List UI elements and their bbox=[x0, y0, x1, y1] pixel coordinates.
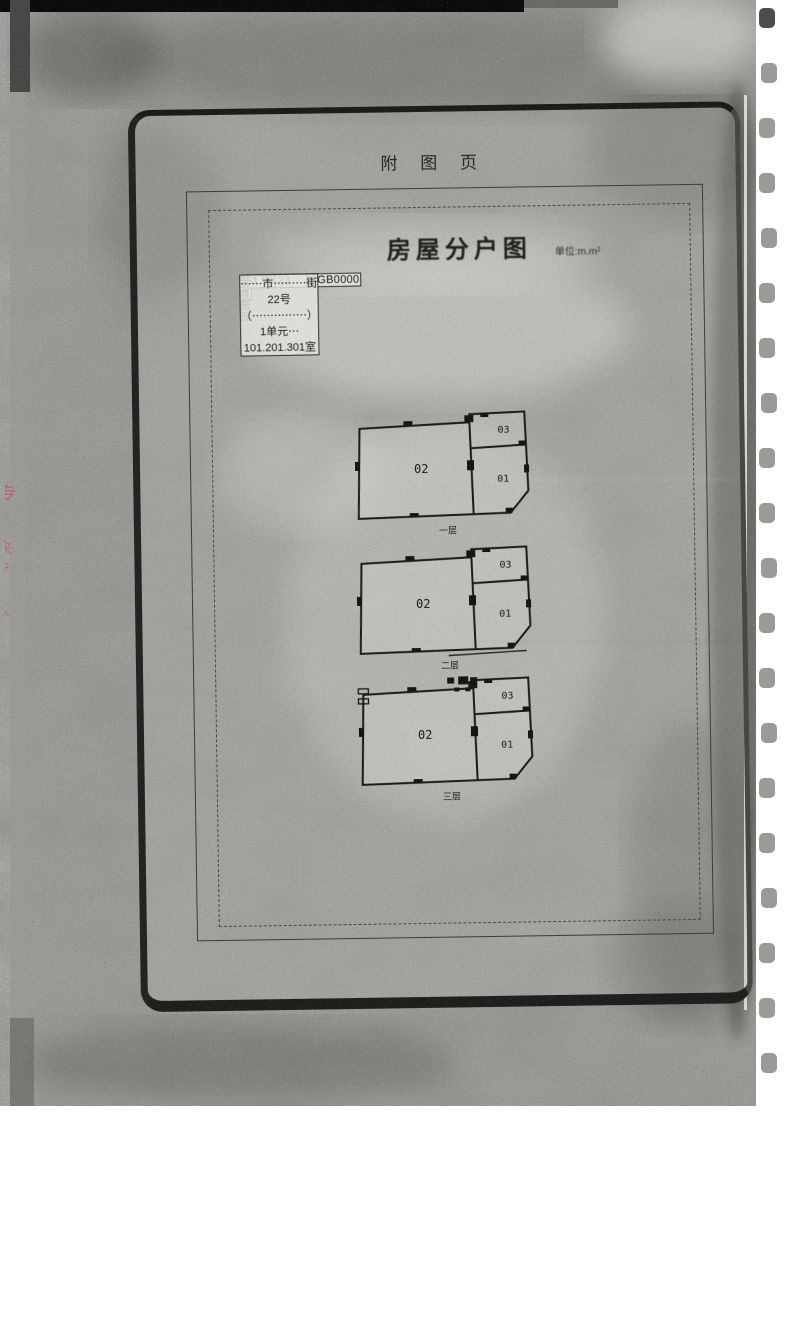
stamp-fragment: 乡 bbox=[5, 558, 16, 578]
room-label-02: 02 bbox=[418, 728, 433, 742]
binder-hole bbox=[759, 283, 775, 303]
certificate-sheet: 附 图 页 房屋分户图 单位:m.m² 丘号 210882009028GB000… bbox=[128, 101, 753, 1012]
binder-hole bbox=[761, 1053, 777, 1073]
document-title: 房屋分户图 bbox=[387, 228, 533, 265]
table-row: 坐落 ⋯⋯市⋯⋯⋯街22号（⋯⋯⋯⋯⋯）1单元⋯101.201.301室 bbox=[239, 275, 240, 308]
binder-hole bbox=[759, 668, 775, 688]
floor-plan-3: 02 03 01 三层 bbox=[357, 675, 559, 810]
room-label-03: 03 bbox=[497, 425, 509, 436]
binder-hole bbox=[759, 998, 775, 1018]
binder-hole bbox=[759, 943, 775, 963]
room-label-02: 02 bbox=[414, 462, 429, 476]
binder-hole bbox=[759, 833, 775, 853]
floor-caption: 一层 bbox=[439, 525, 457, 535]
binder-hole bbox=[761, 558, 777, 578]
address-value: ⋯⋯市⋯⋯⋯街22号（⋯⋯⋯⋯⋯）1单元⋯101.201.301室 bbox=[239, 273, 319, 356]
binder-hole bbox=[761, 393, 777, 413]
room-label-02: 02 bbox=[416, 597, 431, 611]
scanned-page: { "scan": { "header_title": "附 图 页", "do… bbox=[0, 0, 800, 1318]
floor-plan-1: 02 03 01 一层 bbox=[353, 409, 555, 544]
page-title: 附 图 页 bbox=[380, 148, 486, 175]
stamp-fragment: 来 bbox=[5, 538, 16, 558]
binder-hole bbox=[759, 448, 775, 468]
unit-note: 单位:m.m² bbox=[555, 242, 601, 258]
floor-caption: 二层 bbox=[441, 660, 459, 670]
room-label-03: 03 bbox=[501, 691, 513, 702]
room-label-01: 01 bbox=[497, 474, 509, 485]
binder-hole bbox=[761, 228, 777, 248]
floor-plan-2: 02 03 01 二层 bbox=[355, 544, 557, 679]
binder-hole bbox=[759, 338, 775, 358]
stamp-fragment: 人 bbox=[5, 602, 16, 622]
binder-hole bbox=[761, 888, 777, 908]
binder-hole bbox=[759, 778, 775, 798]
binder-hole bbox=[759, 503, 775, 523]
room-label-01: 01 bbox=[501, 740, 513, 751]
floor-caption: 三层 bbox=[443, 791, 461, 801]
room-label-03: 03 bbox=[499, 560, 511, 571]
binder-hole bbox=[761, 63, 777, 83]
binder-hole bbox=[759, 613, 775, 633]
binder-hole bbox=[759, 8, 775, 28]
room-label-01: 01 bbox=[499, 609, 511, 620]
stamp-fragment: 专 bbox=[5, 480, 16, 500]
binder-hole bbox=[759, 118, 775, 138]
binder-hole bbox=[761, 723, 777, 743]
binder-hole bbox=[759, 173, 775, 193]
